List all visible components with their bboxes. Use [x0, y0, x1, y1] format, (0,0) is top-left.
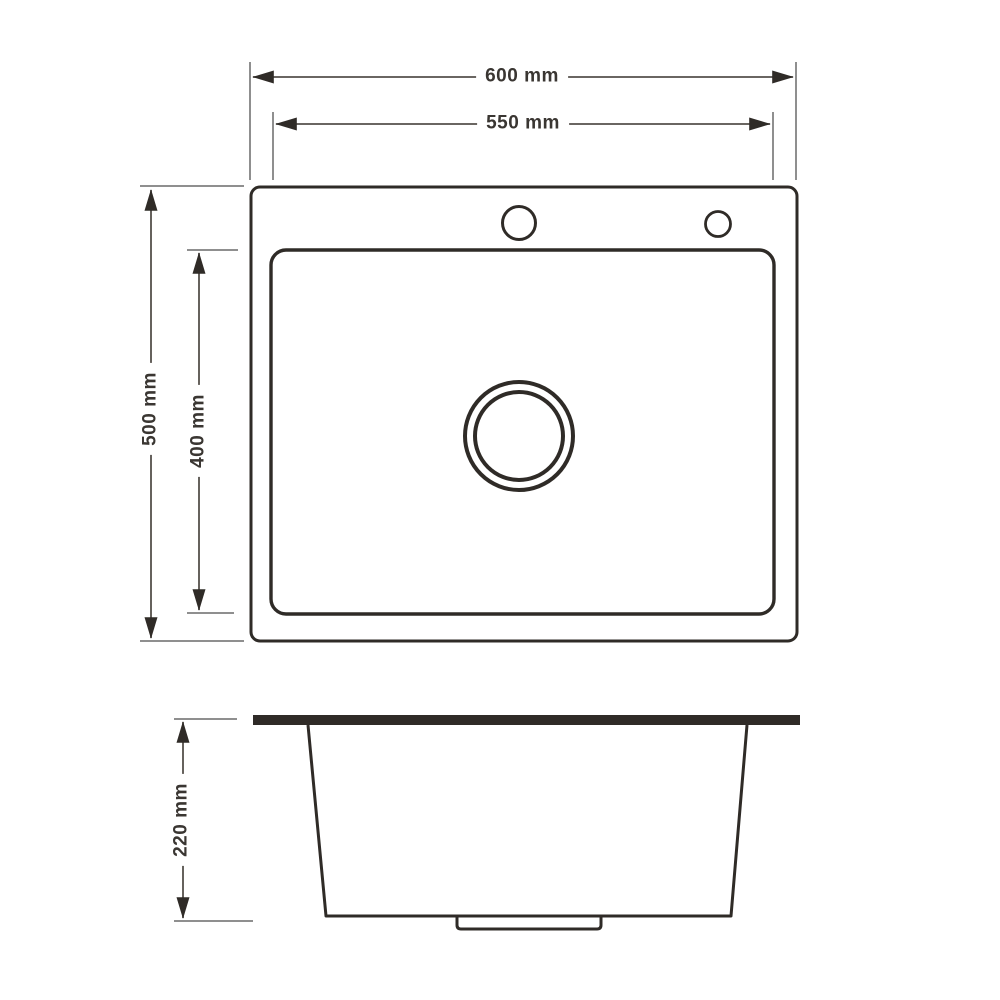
- sink-bowl-outline: [271, 250, 774, 614]
- sink-outer-outline: [251, 187, 797, 641]
- diagram-canvas: [0, 0, 1000, 1000]
- dim-label-outer-depth: 500 mm: [140, 363, 163, 455]
- countertop-rim: [253, 715, 800, 725]
- dim-label-bowl-width: 550 mm: [477, 113, 569, 136]
- faucet-hole-main: [503, 207, 536, 240]
- drain-lip-outline: [457, 917, 601, 929]
- dim-label-outer-width: 600 mm: [476, 66, 568, 89]
- bowl-section-outline: [308, 725, 747, 916]
- top-view: [251, 187, 797, 641]
- faucet-hole-secondary: [706, 212, 731, 237]
- drain-outer-circle: [465, 382, 573, 490]
- drain-inner-circle: [475, 392, 563, 480]
- sink-dimension-diagram: 600 mm 550 mm 500 mm 400 mm 220 mm: [0, 0, 1000, 1000]
- dim-label-bowl-depth: 400 mm: [188, 385, 211, 477]
- dim-label-bowl-height: 220 mm: [171, 774, 194, 866]
- section-view: [253, 715, 800, 929]
